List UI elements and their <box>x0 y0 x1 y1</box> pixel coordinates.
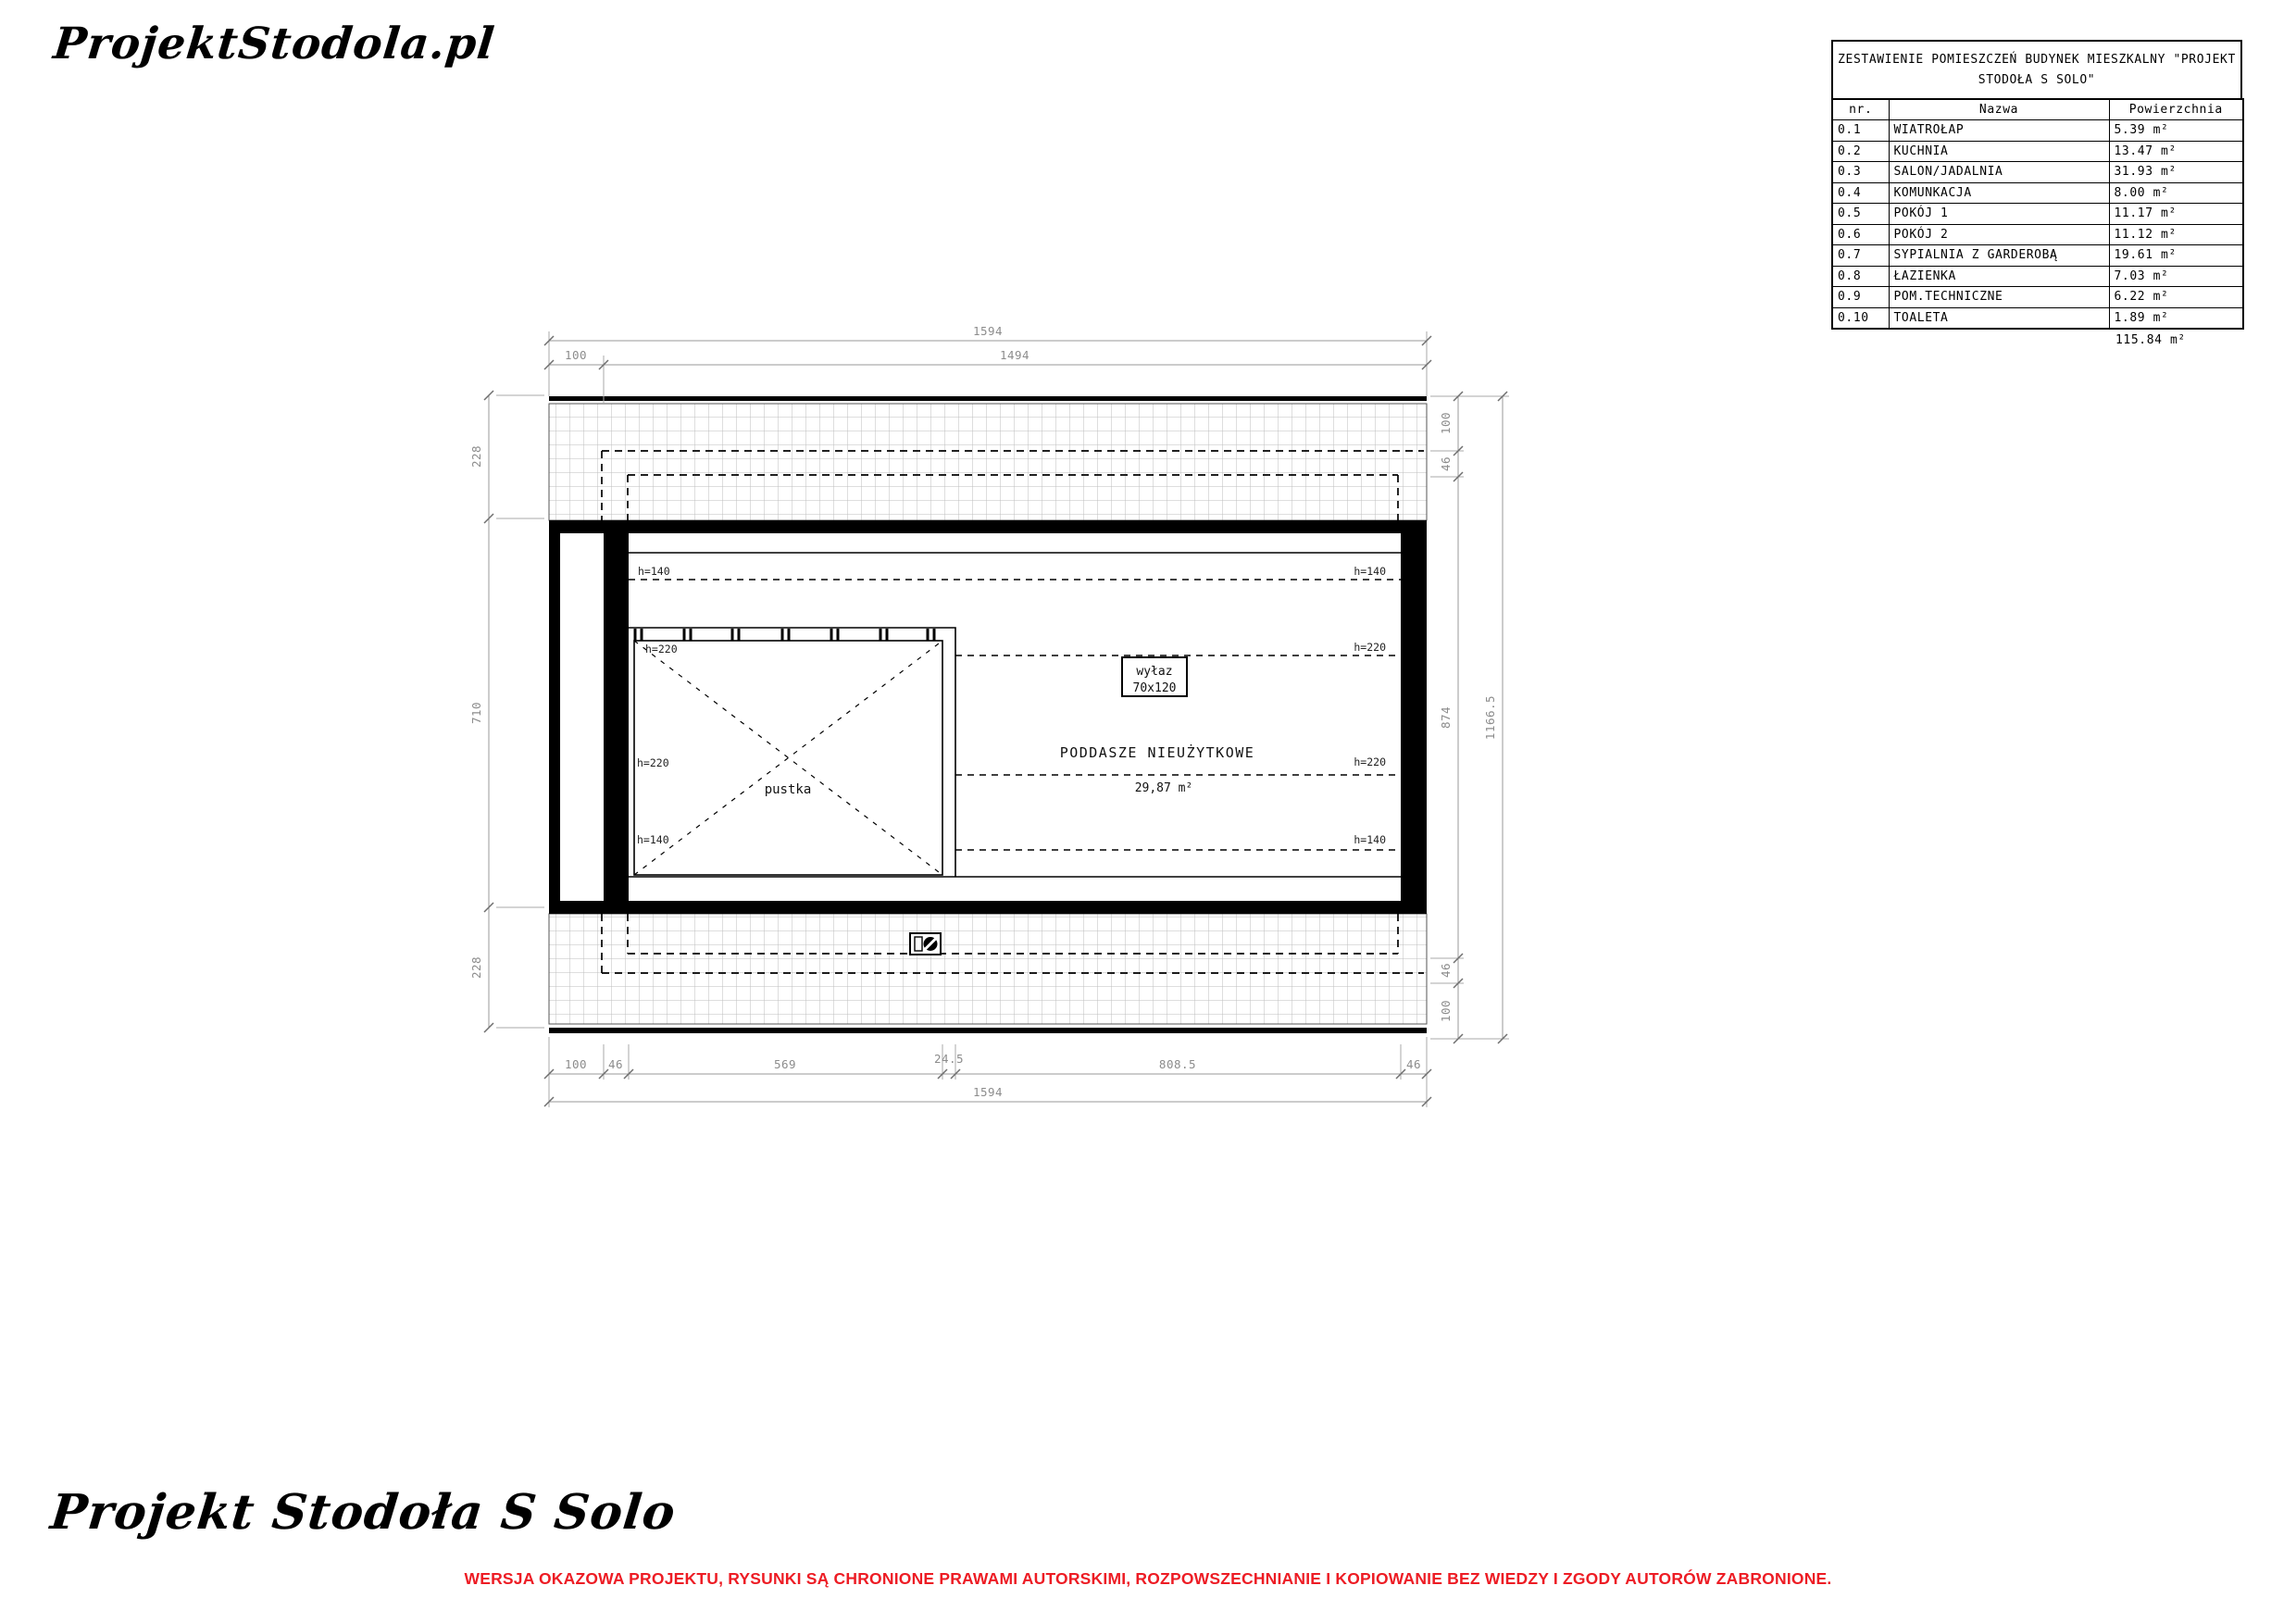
total-area: 115.84 m² <box>1831 333 2242 347</box>
hatch-label: wyłaz <box>1136 665 1172 679</box>
dim-right-4: 100 <box>1439 1000 1453 1022</box>
copyright-warning: WERSJA OKAZOWA PROJEKTU, RYSUNKI SĄ CHRO… <box>0 1569 2296 1589</box>
room-nr: 0.2 <box>1832 141 1889 162</box>
room-name: POM.TECHNICZNE <box>1889 287 2109 308</box>
room-area: 11.17 m² <box>2109 204 2243 225</box>
roof-hatch-top <box>549 396 1427 520</box>
plan-labels: h=140 h=140 h=220 h=220 h=140 h=220 h=22… <box>637 565 1386 846</box>
h140-label-top-left: h=140 <box>638 565 670 578</box>
dim-top-b: 1494 <box>1000 348 1029 362</box>
hatch-size-label: 70x120 <box>1133 681 1177 695</box>
height-contours <box>629 553 1401 877</box>
room-nr: 0.5 <box>1832 204 1889 225</box>
dim-bottom-5: 46 <box>1406 1057 1421 1071</box>
room-row: 0.10TOALETA1.89 m² <box>1832 307 2243 329</box>
dim-right-2: 874 <box>1439 706 1453 729</box>
room-name: ŁAZIENKA <box>1889 266 2109 287</box>
room-row: 0.3SALON/JADALNIA31.93 m² <box>1832 162 2243 183</box>
room-area: 7.03 m² <box>2109 266 2243 287</box>
dim-bottom-2: 569 <box>774 1057 796 1071</box>
dim-bottom-0: 100 <box>565 1057 587 1071</box>
void-opening <box>629 628 955 877</box>
room-nr: 0.7 <box>1832 245 1889 267</box>
room-area: 8.00 m² <box>2109 182 2243 204</box>
table-title-line1: ZESTAWIENIE POMIESZCZEŃ BUDYNEK MIESZKAL… <box>1833 50 2240 70</box>
dim-bottom-1: 46 <box>608 1057 623 1071</box>
dim-top-a: 100 <box>565 348 587 362</box>
room-row: 0.8ŁAZIENKA7.03 m² <box>1832 266 2243 287</box>
table-title: ZESTAWIENIE POMIESZCZEŃ BUDYNEK MIESZKAL… <box>1831 40 2242 98</box>
balustrade-posts <box>635 629 934 641</box>
h220-label-left-upper: h=220 <box>645 643 678 655</box>
dim-bottom-4: 808.5 <box>1159 1057 1196 1071</box>
room-nr: 0.4 <box>1832 182 1889 204</box>
table-title-line2: STODOŁA S SOLO" <box>1833 70 2240 91</box>
room-row: 0.5POKÓJ 111.17 m² <box>1832 204 2243 225</box>
h220-label-left-mid: h=220 <box>637 756 669 769</box>
room-row: 0.4KOMUNKACJA8.00 m² <box>1832 182 2243 204</box>
room-name: WIATROŁAP <box>1889 120 2109 142</box>
room-name: SYPIALNIA Z GARDEROBĄ <box>1889 245 2109 267</box>
room-area: 31.93 m² <box>2109 162 2243 183</box>
attic-area-label: 29,87 m² <box>1135 781 1193 795</box>
dim-right-0: 100 <box>1439 412 1453 434</box>
col-header-name: Nazwa <box>1889 99 2109 120</box>
dim-left-2: 228 <box>469 956 483 979</box>
dim-top-total: 1594 <box>973 324 1003 338</box>
room-name: TOALETA <box>1889 307 2109 329</box>
dim-bottom-total: 1594 <box>973 1085 1003 1099</box>
h220-label-right-upper: h=220 <box>1354 641 1386 654</box>
room-area: 11.12 m² <box>2109 224 2243 245</box>
dim-bottom-3: 24.5 <box>934 1052 964 1066</box>
roof-access-hatch: wyłaz 70x120 <box>1122 657 1187 696</box>
room-nr: 0.9 <box>1832 287 1889 308</box>
h140-label-right-lower: h=140 <box>1354 833 1386 846</box>
col-header-area: Powierzchnia <box>2109 99 2243 120</box>
room-nr: 0.8 <box>1832 266 1889 287</box>
room-area: 6.22 m² <box>2109 287 2243 308</box>
room-nr: 0.3 <box>1832 162 1889 183</box>
h140-label-left-lower: h=140 <box>637 833 669 846</box>
room-name: KOMUNKACJA <box>1889 182 2109 204</box>
dim-right-total: 1166.5 <box>1483 695 1497 740</box>
room-name: POKÓJ 1 <box>1889 204 2109 225</box>
attic-room-label: PODDASZE NIEUŻYTKOWE <box>1060 743 1255 761</box>
room-nr: 0.10 <box>1832 307 1889 329</box>
table-header-row: nr. Nazwa Powierzchnia <box>1832 99 2243 120</box>
room-nr: 0.6 <box>1832 224 1889 245</box>
room-name: KUCHNIA <box>1889 141 2109 162</box>
room-area: 5.39 m² <box>2109 120 2243 142</box>
page: ProjektStodola.pl <box>0 0 2296 1623</box>
room-area: 1.89 m² <box>2109 307 2243 329</box>
room-area: 19.61 m² <box>2109 245 2243 267</box>
dim-left-0: 228 <box>469 445 483 468</box>
brand-logo-bottom: Projekt Stodoła S Solo <box>48 1484 679 1541</box>
room-name: POKÓJ 2 <box>1889 224 2109 245</box>
room-name: SALON/JADALNIA <box>1889 162 2109 183</box>
chimney-symbol <box>910 933 941 955</box>
room-row: 0.9POM.TECHNICZNE6.22 m² <box>1832 287 2243 308</box>
room-area: 13.47 m² <box>2109 141 2243 162</box>
room-row: 0.6POKÓJ 211.12 m² <box>1832 224 2243 245</box>
room-schedule-table: ZESTAWIENIE POMIESZCZEŃ BUDYNEK MIESZKAL… <box>1831 40 2242 347</box>
col-header-nr: nr. <box>1832 99 1889 120</box>
room-nr: 0.1 <box>1832 120 1889 142</box>
dim-right-3: 46 <box>1439 963 1453 978</box>
room-row: 0.2KUCHNIA13.47 m² <box>1832 141 2243 162</box>
h140-label-top-right: h=140 <box>1354 565 1386 578</box>
void-label: pustka <box>765 782 812 797</box>
dim-left-1: 710 <box>469 702 483 724</box>
dim-right-1: 46 <box>1439 456 1453 471</box>
room-row: 0.1WIATROŁAP5.39 m² <box>1832 120 2243 142</box>
h220-label-right-mid: h=220 <box>1354 755 1386 768</box>
room-row: 0.7SYPIALNIA Z GARDEROBĄ19.61 m² <box>1832 245 2243 267</box>
room-table-grid: nr. Nazwa Powierzchnia 0.1WIATROŁAP5.39 … <box>1831 98 2244 330</box>
